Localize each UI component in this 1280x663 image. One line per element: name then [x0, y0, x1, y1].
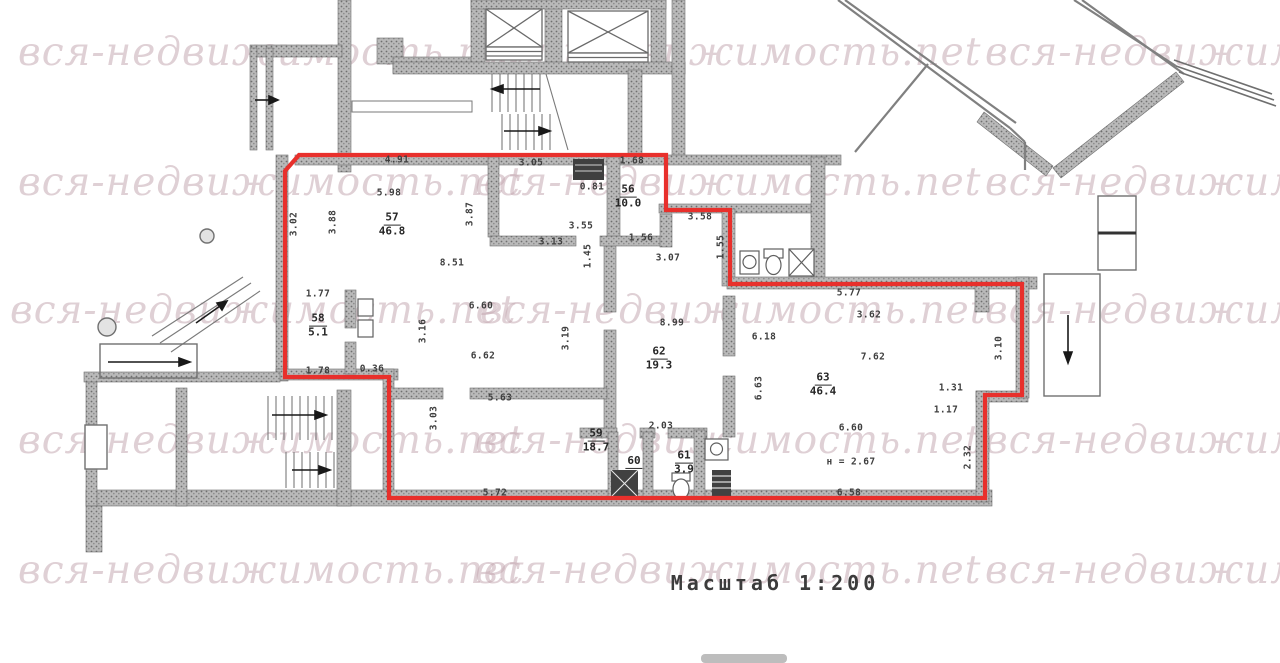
scale-label: Масштаб 1:200 — [671, 571, 880, 595]
floor-plan-page: вся-недвижимость.netвся-недвижимость.net… — [0, 0, 1280, 663]
floor-plan-drawing — [0, 0, 1280, 663]
elevator-shafts — [486, 9, 648, 62]
unit-boundary-outline — [285, 155, 1022, 498]
horizontal-scrollbar-thumb[interactable] — [701, 654, 787, 663]
walls — [84, 0, 1184, 552]
beam-stripes — [1174, 60, 1276, 106]
stair-treads — [152, 74, 568, 488]
